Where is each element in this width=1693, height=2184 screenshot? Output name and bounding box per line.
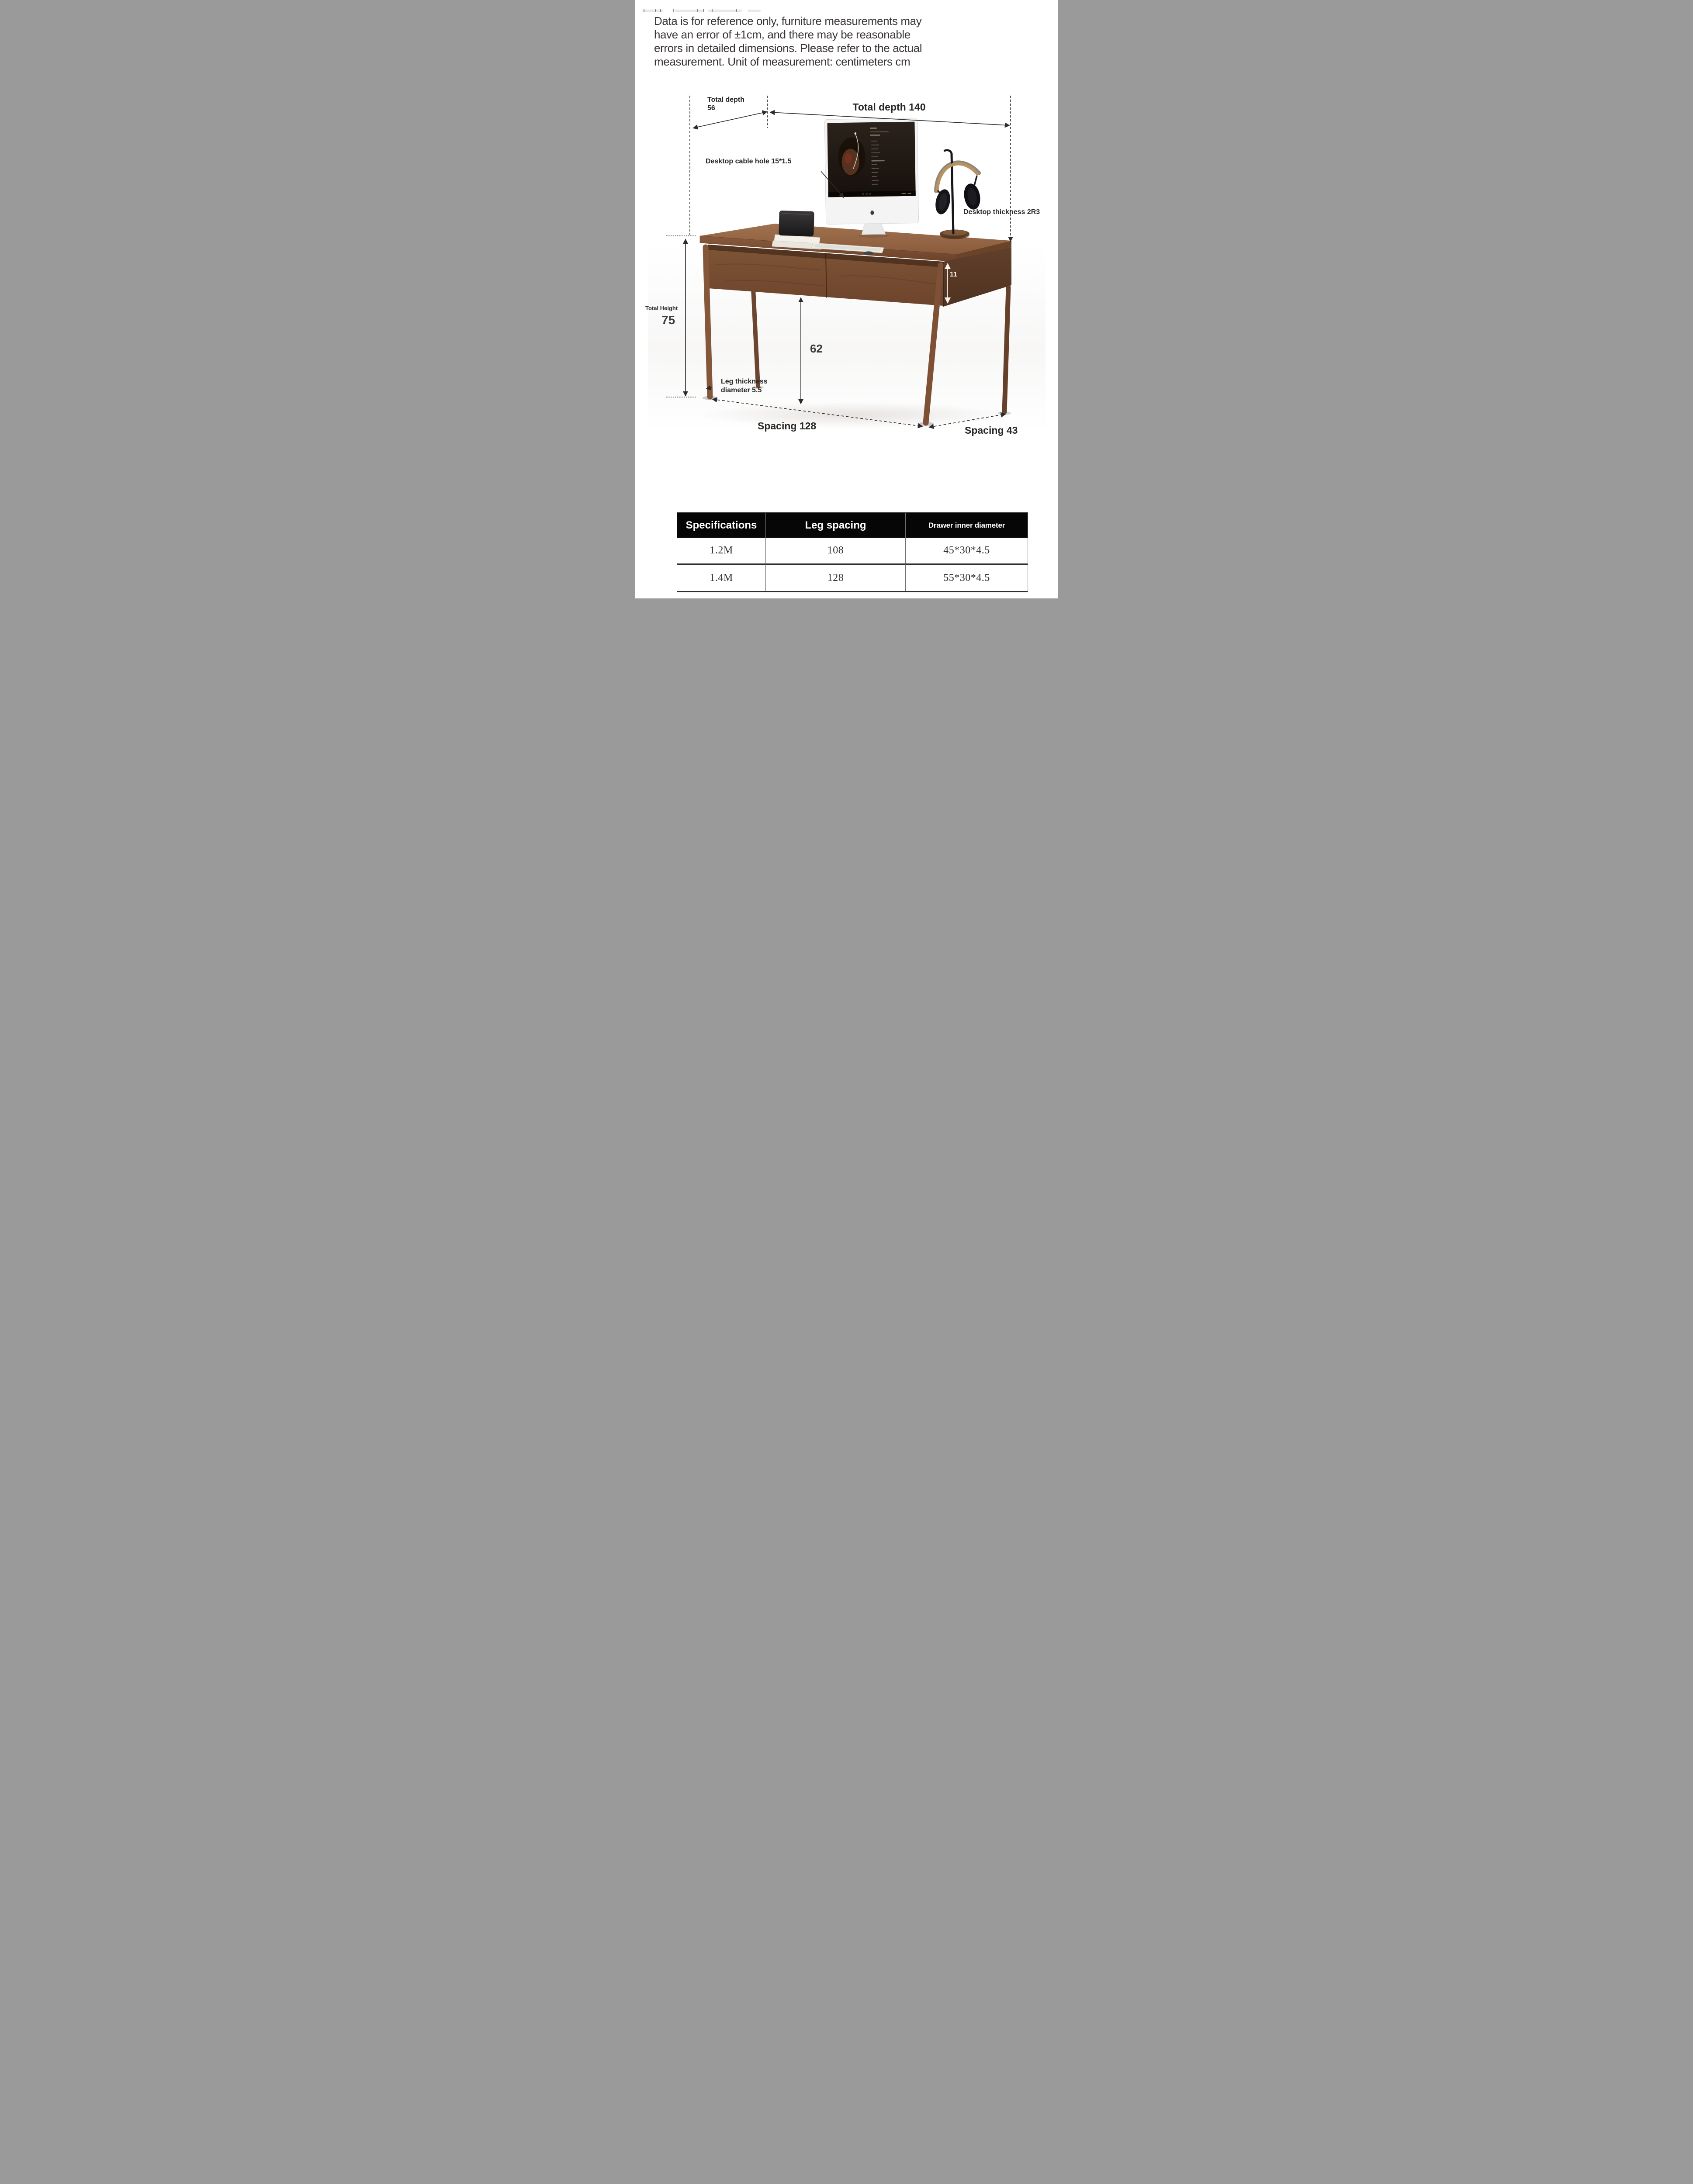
table-cell-drawer-2: 55*30*4.5 [905, 563, 1028, 591]
label-total-depth-56: Total depth 56 [707, 96, 744, 112]
label-total-height-title: Total Height [645, 305, 678, 311]
table-cell-legspacing-1: 108 [765, 538, 905, 563]
label-total-height-value: 75 [661, 313, 675, 327]
label-spacing-128: Spacing 128 [758, 420, 816, 432]
label-leg-clearance: 62 [810, 342, 823, 356]
table-header-drawer-inner-diameter: Drawer inner diameter [905, 513, 1028, 538]
stand-hook [945, 150, 952, 154]
label-text: Leg thickness [721, 377, 768, 386]
label-value: 56 [707, 104, 744, 112]
label-drawer-height: 11 [950, 271, 957, 279]
label-spacing-43: Spacing 43 [965, 425, 1018, 436]
label-desktop-thickness: Desktop thickness 2R3 [963, 208, 1040, 216]
label-text: diameter 5.5 [721, 386, 768, 395]
dim-arrow-depth-56 [693, 112, 767, 128]
speaker-box [779, 211, 814, 236]
headphone-stand-illustration [933, 150, 982, 239]
table-cell-spec-2: 1.4M [677, 563, 765, 591]
stand-base-sheen [943, 230, 966, 236]
table-header-leg-spacing: Leg spacing [765, 513, 905, 538]
leg-shadow [998, 411, 1011, 415]
table-cell-legspacing-2: 128 [765, 563, 905, 591]
table-header-specifications: Specifications [677, 513, 765, 538]
label-leg-thickness: Leg thickness diameter 5.5 [721, 377, 768, 395]
leg-shadow [917, 422, 934, 426]
label-cable-hole: Desktop cable hole 15*1.5 [706, 158, 792, 166]
product-dimension-sheet: Data is for reference only, furniture me… [635, 0, 1058, 598]
label-text: Total depth [707, 96, 744, 104]
mouse-illustration [864, 251, 873, 255]
label-total-depth-140: Total depth 140 [824, 101, 955, 113]
table-cell-drawer-1: 45*30*4.5 [905, 538, 1028, 563]
table-cell-spec-1: 1.2M [677, 538, 765, 563]
spec-table: Specifications Leg spacing Drawer inner … [677, 512, 1028, 592]
desk-dimension-illustration [635, 0, 1058, 598]
monitor-illustration [824, 118, 919, 238]
monitor-stand-foot [862, 224, 886, 235]
